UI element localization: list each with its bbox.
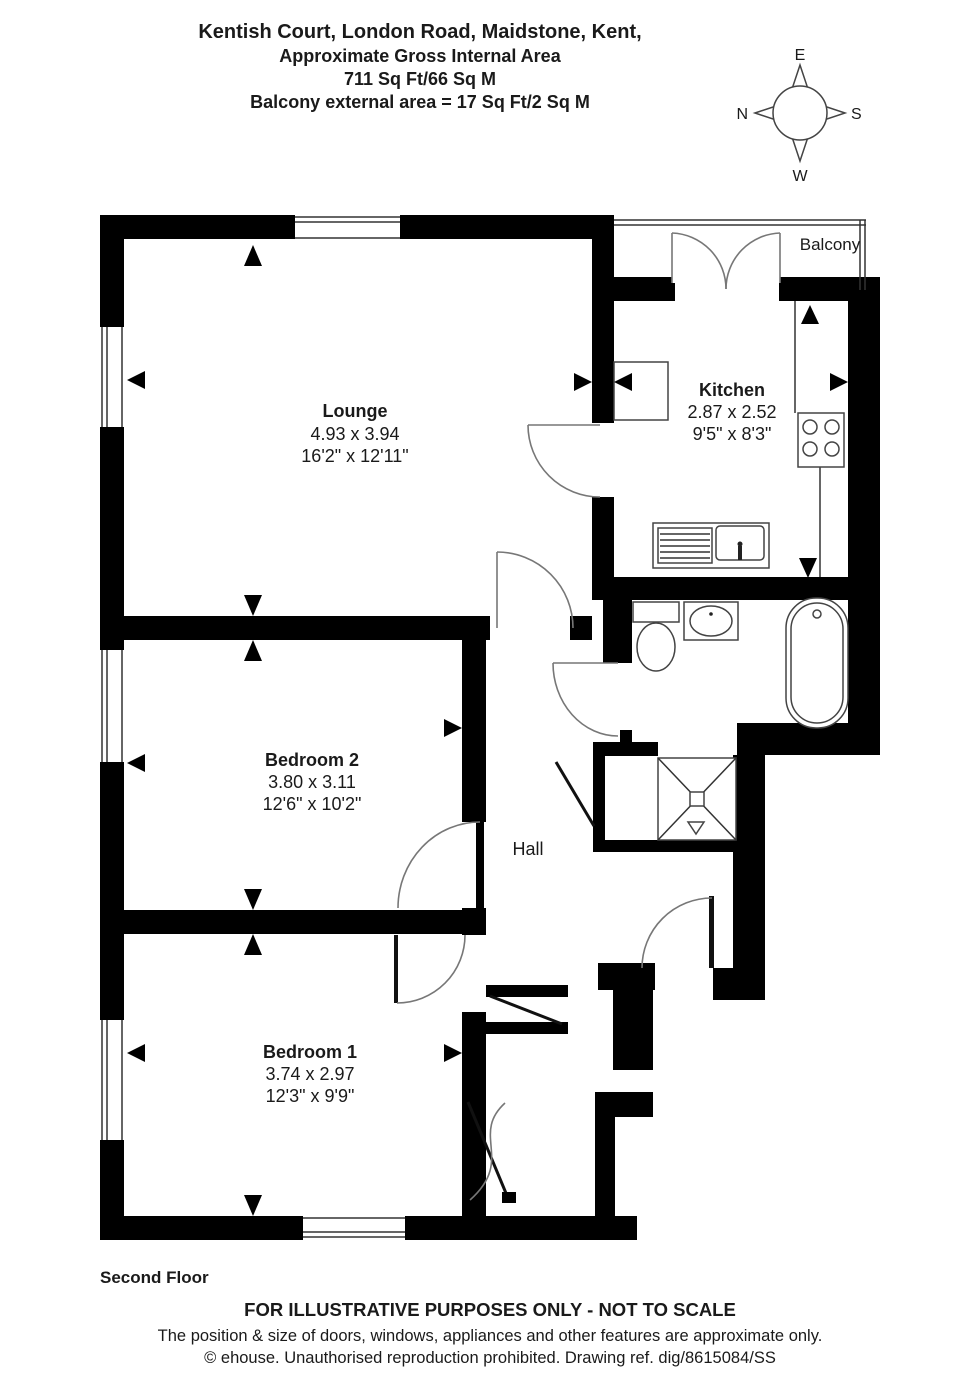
window-lounge-left (100, 327, 124, 427)
bathroom-door (553, 663, 618, 736)
bedroom1-metric: 3.74 x 2.97 (265, 1064, 354, 1084)
bedroom1-label: Bedroom 1 (263, 1042, 357, 1062)
compass-circle (773, 86, 827, 140)
walls (100, 215, 880, 1240)
copyright-text: © ehouse. Unauthorised reproduction proh… (204, 1349, 776, 1367)
bedroom1-door (394, 935, 465, 1003)
title-block: Kentish Court, London Road, Maidstone, K… (198, 21, 641, 112)
lounge-metric: 4.93 x 3.94 (310, 424, 399, 444)
entrance-door (642, 896, 714, 968)
kitchen-imperial: 9'5" x 8'3" (693, 424, 772, 444)
bedroom1-imperial: 12'3" x 9'9" (266, 1086, 355, 1106)
floor-plan-drawing: Kentish Court, London Road, Maidstone, K… (0, 0, 980, 1385)
compass-north: N (736, 106, 748, 123)
compass-rose-icon: E N S W (736, 47, 861, 185)
toilet-fixture (633, 602, 679, 671)
bedroom2-label: Bedroom 2 (265, 750, 359, 770)
hall-cupboard-door (556, 762, 594, 826)
balcony-double-door (667, 233, 787, 301)
hall-closet-door (490, 996, 562, 1024)
compass-south: S (851, 106, 862, 123)
bedroom2-door (398, 822, 484, 908)
title-area-value: 711 Sq Ft/66 Sq M (344, 69, 496, 89)
kitchen-door (528, 425, 600, 497)
compass-east: E (795, 47, 806, 64)
hob-fixture (798, 413, 844, 467)
shower-fixture (658, 758, 736, 840)
room-labels: Lounge 4.93 x 3.94 16'2" x 12'11" Kitche… (263, 235, 861, 1106)
balcony-label: Balcony (800, 235, 861, 254)
floor-name: Second Floor (100, 1268, 209, 1287)
bathtub-fixture (786, 598, 848, 728)
sink-fixture (653, 523, 769, 568)
kitchen-appliance (614, 362, 668, 420)
bedroom2-metric: 3.80 x 3.11 (268, 772, 356, 792)
title-balcony-area: Balcony external area = 17 Sq Ft/2 Sq M (250, 92, 590, 112)
windows (100, 215, 405, 1240)
basin-fixture (684, 602, 738, 640)
kitchen-label: Kitchen (699, 380, 765, 400)
disclaimer-text: FOR ILLUSTRATIVE PURPOSES ONLY - NOT TO … (244, 1299, 736, 1320)
lounge-imperial: 16'2" x 12'11" (301, 446, 408, 466)
title-area-label: Approximate Gross Internal Area (279, 46, 561, 66)
window-bedroom1-bottom (303, 1216, 405, 1240)
floor-plan-page: Kentish Court, London Road, Maidstone, K… (0, 0, 980, 1385)
kitchen-metric: 2.87 x 2.52 (687, 402, 776, 422)
window-lounge-top (295, 215, 400, 239)
window-bedroom2-left (100, 650, 124, 762)
bedroom2-imperial: 12'6" x 10'2" (263, 794, 362, 814)
window-bedroom1-left (100, 1020, 124, 1140)
hall-label: Hall (512, 839, 543, 859)
compass-west: W (792, 168, 808, 185)
lounge-label: Lounge (323, 401, 388, 421)
lounge-door (497, 552, 573, 628)
approximation-note: The position & size of doors, windows, a… (158, 1327, 823, 1345)
title-address: Kentish Court, London Road, Maidstone, K… (198, 21, 641, 43)
footer-block: Second Floor FOR ILLUSTRATIVE PURPOSES O… (100, 1268, 822, 1367)
